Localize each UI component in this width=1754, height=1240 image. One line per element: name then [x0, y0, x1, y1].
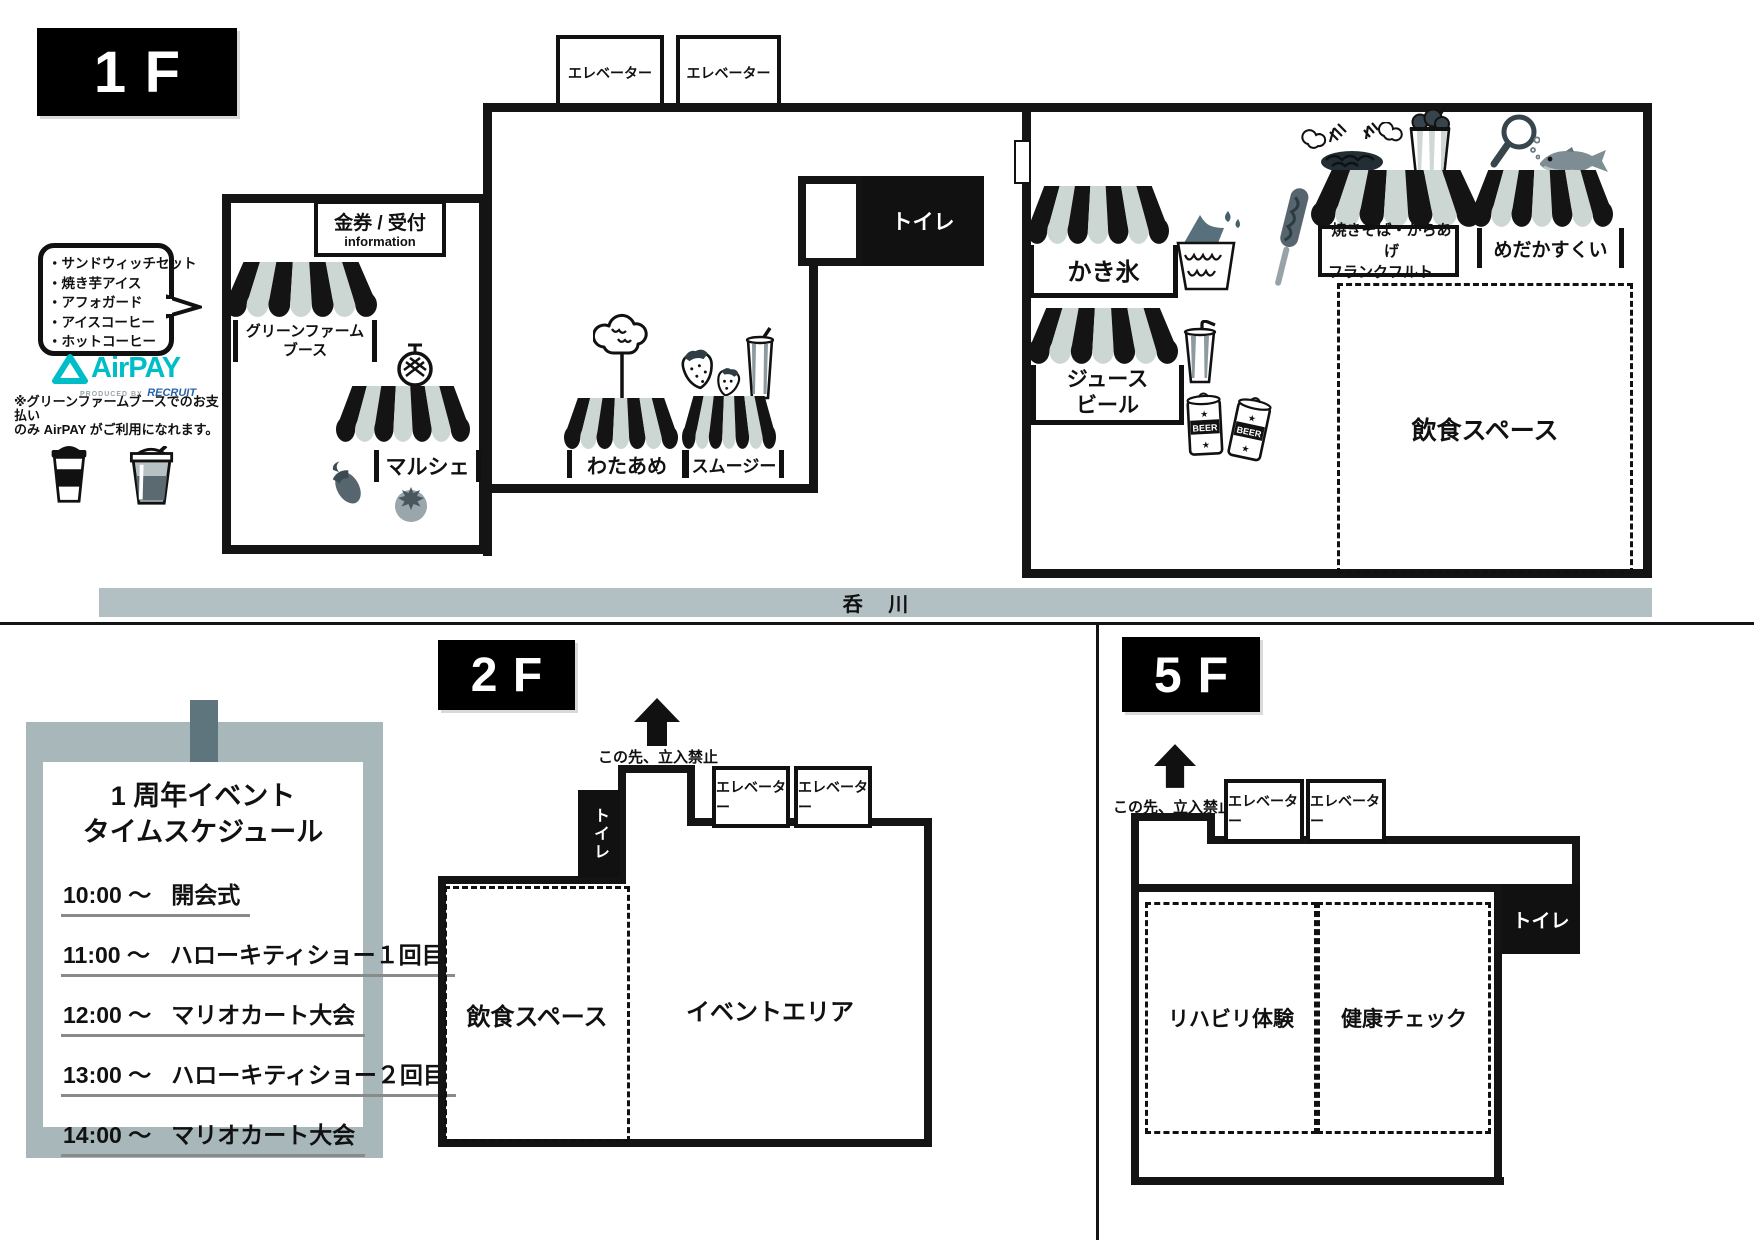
schedule-time: 10:00 ～: [63, 882, 151, 908]
toilet-sign-5f: トイレ: [1502, 884, 1580, 954]
smoothie-cup-icon: [744, 326, 774, 402]
green-farm-awning: [225, 262, 377, 318]
wall-segment: [1131, 884, 1505, 892]
smoothie-awning: [682, 396, 776, 450]
karaage-bucket-icon: [1403, 105, 1455, 179]
airpay-note: ※グリーンファームブースでのお支払い のみ AirPAY がご利用になれます。: [14, 395, 224, 437]
elevator-box: エレベーター: [676, 35, 781, 111]
yakisoba-line2: フランクフルト: [1328, 262, 1433, 283]
green-farm-label: グリーンファーム ブース: [233, 320, 377, 362]
eggplant-icon: [323, 456, 371, 508]
wall-segment: [687, 765, 695, 826]
elevator-box: エレベーター: [1306, 779, 1386, 843]
floor1-label: 1F: [37, 28, 237, 116]
wall-segment: [809, 258, 818, 493]
yakisoba-icon: [1300, 122, 1404, 174]
wall-segment: [1131, 813, 1139, 1185]
schedule-time: 13:00 ～: [63, 1062, 151, 1088]
marche-awning: [336, 386, 470, 443]
elevator-box: エレベーター: [1224, 779, 1304, 843]
rehab-area: リハビリ体験: [1145, 902, 1317, 1134]
river-bar: 呑 川: [99, 588, 1652, 617]
schedule-time: 12:00 ～: [63, 1002, 151, 1028]
toilet-sign-1f: トイレ: [862, 176, 984, 266]
schedule-event: マリオカート大会: [171, 1002, 355, 1028]
closet-room: [798, 176, 864, 266]
menu-speech-bubble: ・サンドウィッチセット ・焼き芋アイス ・アフォガード ・アイスコーヒー ・ホッ…: [38, 243, 174, 356]
up-arrow-icon: [634, 698, 680, 746]
shaved-ice-label: かき氷: [1029, 245, 1178, 298]
floor5-label: 5F: [1122, 637, 1260, 712]
wall-segment: [1131, 813, 1215, 821]
cotton-candy-label: わたあめ: [567, 450, 687, 478]
menu-item: ・ホットコーヒー: [48, 332, 164, 352]
corn-dog-icon: [1266, 183, 1312, 295]
elevator-box: エレベーター: [712, 766, 790, 828]
door-marker: [1014, 140, 1031, 184]
reception-booth: 金券 / 受付 information: [314, 200, 446, 257]
svg-text:★: ★: [1200, 409, 1209, 419]
smoothie-label: スムージー: [684, 450, 784, 478]
wall-segment: [483, 484, 818, 493]
strawberry-icon: [678, 342, 750, 400]
no-entry-note-2f: この先、立入禁止: [588, 746, 728, 767]
juice-line1: ジュース: [1067, 367, 1148, 393]
speech-bubble-tail: [166, 294, 202, 320]
poster-sheet: 1 周年イベント タイムスケジュール 10:00 ～開会式 11:00 ～ハロー…: [43, 762, 363, 1127]
dining-space-2f: 飲食スペース: [444, 886, 630, 1142]
health-check-area: 健康チェック: [1317, 902, 1491, 1134]
beer-cans-icon: BEER ★ ★ BEER ★ ★: [1181, 388, 1273, 462]
cotton-candy-icon: [593, 303, 650, 402]
airpay-note-line2: のみ AirPAY がご利用になれます。: [14, 423, 224, 437]
schedule-time: 14:00 ～: [63, 1122, 151, 1148]
floor2-label: 2F: [438, 640, 575, 710]
elevator-box: エレベーター: [556, 35, 664, 111]
dining-space-1f: 飲食スペース: [1337, 283, 1633, 574]
wall-segment: [1131, 1177, 1504, 1185]
yakisoba-label: 焼きそば・からあげ フランクフルト: [1318, 225, 1459, 277]
juice-beer-awning: [1028, 308, 1178, 365]
yakisoba-line1: 焼きそば・からあげ: [1328, 220, 1455, 262]
poster-title-line2: タイムスケジュール: [57, 814, 349, 850]
juice-line2: ビール: [1076, 393, 1139, 419]
schedule-event: マリオカート大会: [171, 1122, 355, 1148]
shaved-ice-awning: [1027, 186, 1169, 245]
river-label: 呑 川: [833, 588, 919, 617]
medaka-label: めだかすくい: [1477, 228, 1624, 268]
cotton-candy-awning: [564, 398, 678, 450]
tomato-icon: [382, 483, 440, 523]
schedule-row: 14:00 ～マリオカート大会: [61, 1116, 365, 1157]
elevator-box: エレベーター: [794, 766, 872, 828]
wall-segment: [483, 103, 1652, 112]
reception-title: 金券 / 受付: [318, 208, 442, 235]
medaka-awning: [1471, 170, 1613, 228]
section-divider-vertical: [1096, 622, 1099, 1240]
juice-beer-label: ジュース ビール: [1031, 365, 1184, 425]
poster-title-line1: 1 周年イベント: [57, 778, 349, 814]
svg-text:★: ★: [1202, 440, 1211, 450]
schedule-row: 10:00 ～開会式: [61, 876, 250, 917]
menu-item: ・サンドウィッチセット: [48, 254, 164, 274]
melon-icon: [396, 342, 434, 388]
menu-item: ・アイスコーヒー: [48, 313, 164, 333]
svg-text:BEER: BEER: [1192, 422, 1218, 433]
juice-cup-icon: [1180, 320, 1220, 386]
reception-subtitle: information: [318, 234, 442, 249]
menu-item: ・アフォガード: [48, 293, 164, 313]
toilet-sign-2f: トイレ: [578, 790, 620, 878]
wall-segment: [618, 765, 695, 773]
marche-label: マルシェ: [374, 450, 481, 482]
event-floor-map: 1F エレベーター エレベーター トイレ 金券 / 受付 information…: [0, 0, 1754, 1240]
coffee-cup-icon: [38, 440, 100, 504]
green-farm-line1: グリーンファーム: [246, 322, 364, 341]
green-farm-line2: ブース: [283, 341, 327, 360]
schedule-event: 開会式: [171, 882, 240, 908]
airpay-note-line1: ※グリーンファームブースでのお支払い: [14, 395, 224, 423]
schedule-row: 13:00 ～ハローキティショー２回目: [61, 1056, 456, 1097]
takeout-drink-icon: [116, 446, 188, 506]
schedule-event: ハローキティショー２回目: [171, 1062, 446, 1088]
airpay-wordmark: AirPAY: [91, 352, 180, 385]
timetable-poster: 1 周年イベント タイムスケジュール 10:00 ～開会式 11:00 ～ハロー…: [26, 722, 383, 1158]
schedule-row: 12:00 ～マリオカート大会: [61, 996, 365, 1037]
wall-segment: [1494, 884, 1502, 1185]
schedule-time: 11:00 ～: [63, 942, 150, 968]
section-divider-horizontal: [0, 622, 1754, 625]
schedule-row: 11:00 ～ハローキティショー１回目: [61, 936, 455, 977]
wall-segment: [924, 818, 932, 1147]
airpay-triangle-icon: [52, 353, 88, 385]
menu-item: ・焼き芋アイス: [48, 274, 164, 294]
wall-segment: [1643, 103, 1652, 578]
schedule-event: ハローキティショー１回目: [170, 942, 445, 968]
up-arrow-icon: [1154, 742, 1196, 790]
event-area-label: イベントエリア: [650, 992, 890, 1027]
shaved-ice-icon: [1158, 205, 1248, 295]
